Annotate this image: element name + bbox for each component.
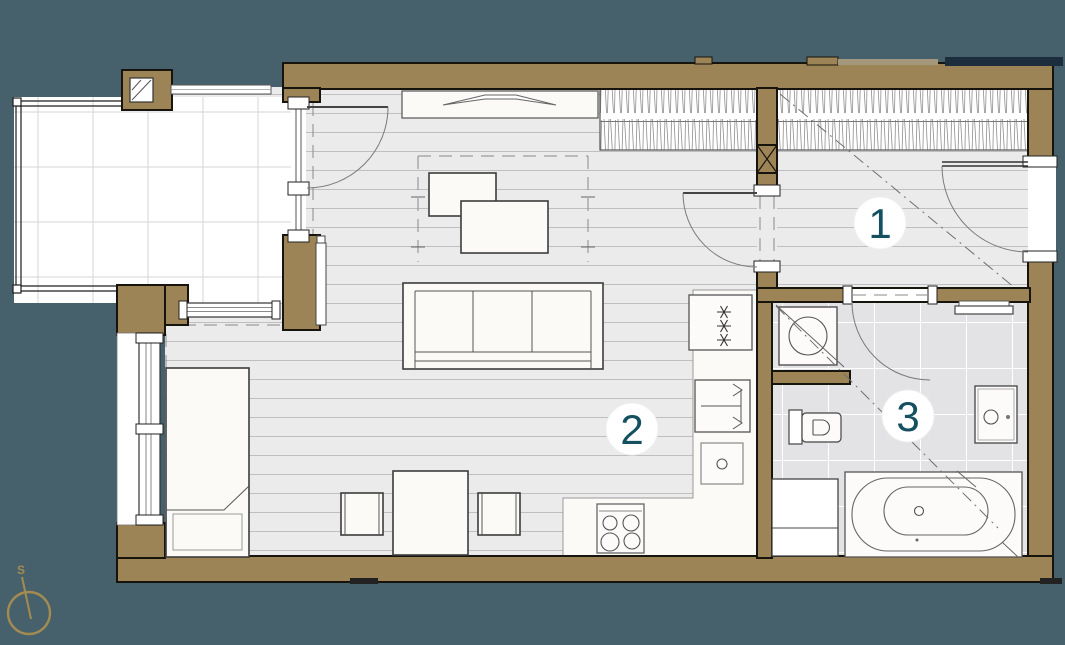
shower-bar-icon: [955, 301, 1013, 314]
floor-plan-page: 1 2 3 S: [0, 0, 1065, 645]
column-glazing: [130, 78, 153, 102]
room-badge-2[interactable]: 2: [606, 403, 658, 455]
wardrobe-hall: [777, 89, 1028, 150]
bedroom-window: [117, 333, 163, 525]
stove: [597, 504, 644, 553]
balcony-floor: [14, 97, 293, 303]
lintel-navy: [945, 57, 1063, 66]
room-number-label: 3: [896, 393, 919, 440]
room-number-label: 1: [868, 200, 891, 247]
balcony: [13, 70, 293, 303]
compass-north-icon: S: [8, 563, 50, 634]
bed: [166, 368, 249, 557]
wall-shelf: [402, 91, 598, 118]
living-window: [179, 301, 280, 319]
freezer-stars-icon: [717, 306, 731, 346]
fridge: [689, 295, 752, 350]
bathtub: [845, 471, 1022, 557]
coffee-table-large: [461, 201, 548, 253]
floor-plan-svg: 1 2 3 S: [0, 0, 1065, 645]
radiator: [316, 236, 326, 325]
stool-right: [478, 493, 520, 535]
room-badge-1[interactable]: 1: [854, 197, 906, 249]
dishwasher: [695, 380, 750, 432]
room-number-label: 2: [620, 406, 643, 453]
room-badge-3[interactable]: 3: [882, 390, 934, 442]
wardrobe-living: [600, 89, 757, 150]
bathroom-sink: [975, 386, 1017, 443]
stool-left: [341, 493, 383, 535]
toilet: [789, 410, 841, 444]
dining-table: [393, 471, 468, 555]
sofa: [403, 283, 603, 369]
kitchen-sink: [701, 443, 743, 484]
glass-screen: [171, 85, 271, 94]
structural-column-x: [757, 145, 777, 173]
washing-machine: [776, 305, 844, 367]
compass-label: S: [17, 563, 25, 577]
bath-cabinet: [772, 479, 838, 556]
